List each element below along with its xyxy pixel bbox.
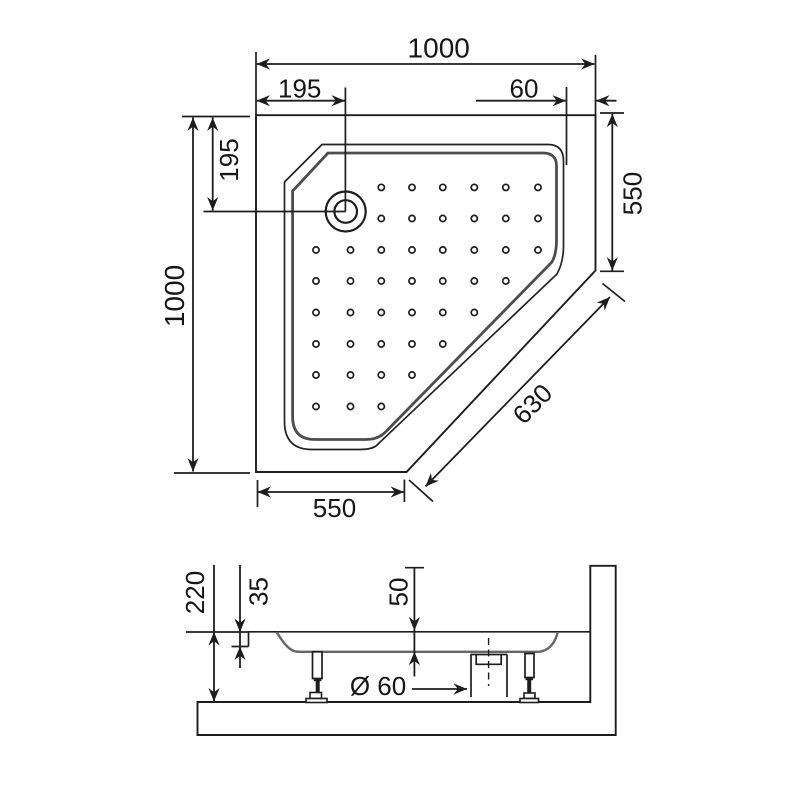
svg-text:195: 195 <box>214 138 244 181</box>
svg-text:195: 195 <box>278 74 321 104</box>
svg-text:60: 60 <box>510 74 539 104</box>
svg-text:220: 220 <box>180 571 210 614</box>
svg-text:550: 550 <box>618 172 648 215</box>
svg-text:1000: 1000 <box>408 33 470 64</box>
svg-text:50: 50 <box>384 578 414 607</box>
svg-text:Ø 60: Ø 60 <box>350 671 406 701</box>
svg-text:1000: 1000 <box>159 265 190 327</box>
svg-text:35: 35 <box>244 577 274 606</box>
svg-text:550: 550 <box>313 493 356 523</box>
